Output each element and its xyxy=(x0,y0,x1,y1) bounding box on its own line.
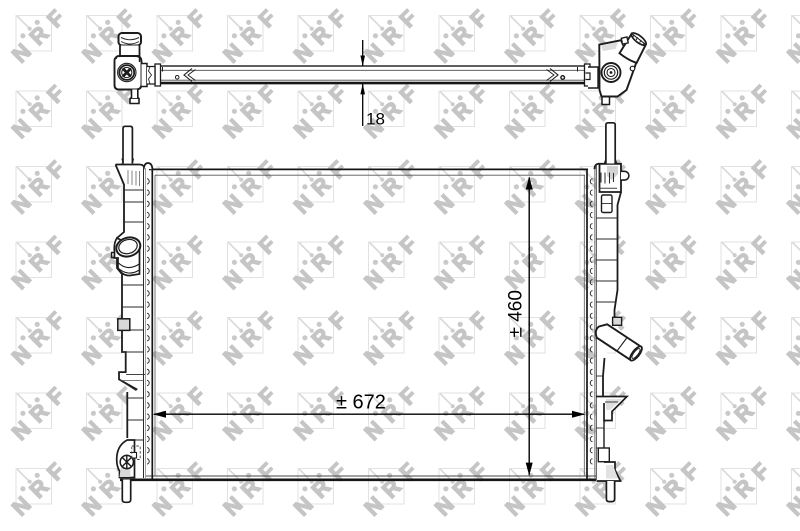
svg-text:18: 18 xyxy=(366,110,385,129)
svg-text:± 672: ± 672 xyxy=(336,392,386,414)
svg-text:± 460: ± 460 xyxy=(506,290,527,337)
